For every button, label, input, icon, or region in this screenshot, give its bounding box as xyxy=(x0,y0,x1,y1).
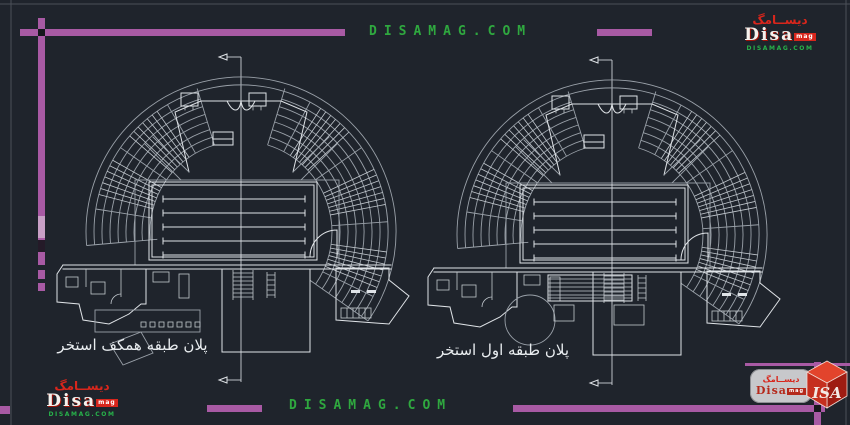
disamag-logo-bottom-left: ديســامگ Disamag DISAMAG.COM xyxy=(40,380,124,418)
first-floor-extras xyxy=(505,275,644,345)
caption-first-floor: پلان طبقه اول استخر xyxy=(428,341,578,359)
logo-site-text: DISAMAG.COM xyxy=(40,412,124,418)
magenta-border-marks xyxy=(0,18,850,425)
disamag-cube-icon: ISA xyxy=(804,358,850,414)
border-bar-bottom-edge xyxy=(0,406,10,414)
logo-script-text: ديســامگ xyxy=(756,376,806,384)
caption-ground-floor: پلان طبقه همکف استخر xyxy=(55,336,210,354)
logo-site-text: DISAMAG.COM xyxy=(740,46,820,52)
logo-mag-badge: mag xyxy=(794,33,816,41)
watermark-bottom: DISAMAG.COM xyxy=(289,398,452,413)
logo-name-text: Disa xyxy=(756,384,787,397)
border-bar-top-left xyxy=(20,29,345,36)
watermark-top: DISAMAG.COM xyxy=(369,24,532,39)
logo-name-text: Disa xyxy=(744,25,794,45)
cad-canvas xyxy=(0,0,850,425)
floor-plan-ground xyxy=(57,54,409,383)
border-bar-top-right xyxy=(597,29,652,36)
disamag-logo-top-right: ديســامگ Disamag DISAMAG.COM xyxy=(740,14,820,52)
border-bar-bottom-right xyxy=(513,405,825,412)
border-bar-bottom-left xyxy=(207,405,262,412)
logo-mag-badge: mag xyxy=(96,399,118,407)
disamag-pill-badge: ديســامگ Disamag xyxy=(750,369,812,403)
cube-logo-text: ISA xyxy=(811,384,842,402)
floor-plan-first xyxy=(428,57,780,386)
cad-viewport: DISAMAG.COM DISAMAG.COM پلان طبقه همکف ا… xyxy=(0,0,850,425)
logo-name-text: Disa xyxy=(46,391,96,411)
